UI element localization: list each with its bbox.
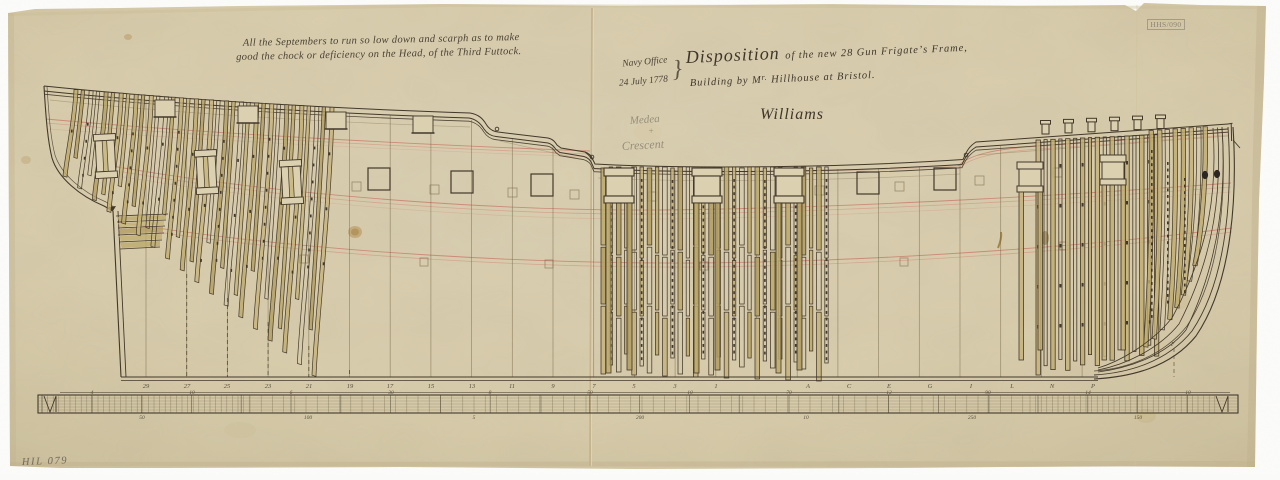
svg-text:70: 70 (786, 390, 792, 396)
svg-text:19: 19 (347, 383, 354, 390)
svg-text:21: 21 (306, 383, 313, 390)
svg-text:10: 10 (1185, 390, 1191, 396)
svg-text:15: 15 (428, 383, 435, 390)
svg-text:17: 17 (387, 383, 394, 390)
svg-text:29: 29 (143, 383, 150, 390)
svg-text:Williams: Williams (760, 106, 824, 123)
svg-text:L: L (1009, 383, 1014, 390)
svg-text:50: 50 (587, 390, 593, 396)
svg-text:12: 12 (886, 390, 892, 396)
svg-text:50: 50 (139, 415, 145, 421)
svg-text:4: 4 (91, 389, 94, 396)
svg-text:Crescent: Crescent (621, 137, 665, 153)
svg-text:10: 10 (189, 390, 195, 396)
svg-text:Medea: Medea (628, 113, 660, 127)
svg-text:23: 23 (265, 383, 272, 390)
svg-text:N: N (1049, 383, 1055, 390)
svg-text:250: 250 (968, 415, 977, 421)
svg-text:F: F (1170, 342, 1175, 348)
svg-text:+: + (648, 126, 654, 136)
svg-text:A: A (805, 383, 810, 390)
svg-text:10: 10 (687, 390, 693, 396)
svg-text:6: 6 (290, 390, 293, 396)
svg-text:5: 5 (473, 415, 476, 421)
svg-text:13: 13 (469, 383, 476, 390)
svg-text:8: 8 (489, 390, 492, 396)
svg-text:1: 1 (714, 383, 717, 390)
svg-text:E: E (886, 383, 891, 390)
svg-text:150: 150 (1134, 415, 1143, 421)
svg-text:25: 25 (224, 383, 231, 390)
svg-text:14: 14 (1085, 389, 1091, 396)
svg-text:11: 11 (509, 383, 515, 390)
svg-text:C: C (847, 383, 852, 390)
svg-text:HIL 079: HIL 079 (21, 455, 69, 468)
svg-text:90: 90 (985, 390, 991, 396)
svg-text:10: 10 (803, 415, 809, 421)
svg-text:200: 200 (636, 415, 645, 421)
svg-text:30: 30 (387, 390, 394, 396)
svg-text:27: 27 (184, 383, 191, 390)
svg-text:HHS/090: HHS/090 (1150, 20, 1181, 29)
svg-text:100: 100 (304, 415, 313, 421)
svg-text:G: G (928, 383, 933, 390)
svg-text:P: P (1090, 383, 1095, 390)
